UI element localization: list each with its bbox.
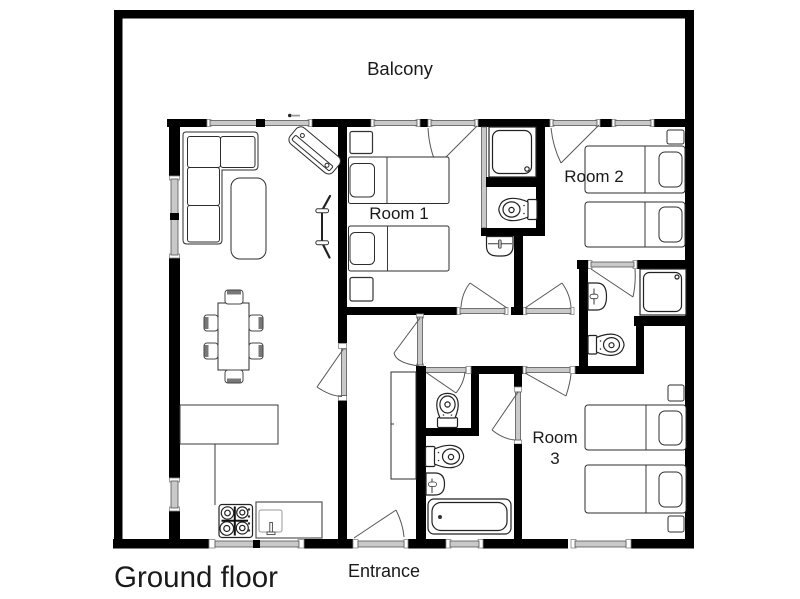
svg-text:Balcony: Balcony xyxy=(367,58,434,79)
svg-text:3: 3 xyxy=(550,449,559,468)
svg-text:Room: Room xyxy=(532,428,577,447)
svg-text:Room 1: Room 1 xyxy=(369,204,429,223)
svg-text:Ground floor: Ground floor xyxy=(114,561,278,594)
svg-text:Room 2: Room 2 xyxy=(564,167,624,186)
svg-text:Entrance: Entrance xyxy=(348,561,420,581)
